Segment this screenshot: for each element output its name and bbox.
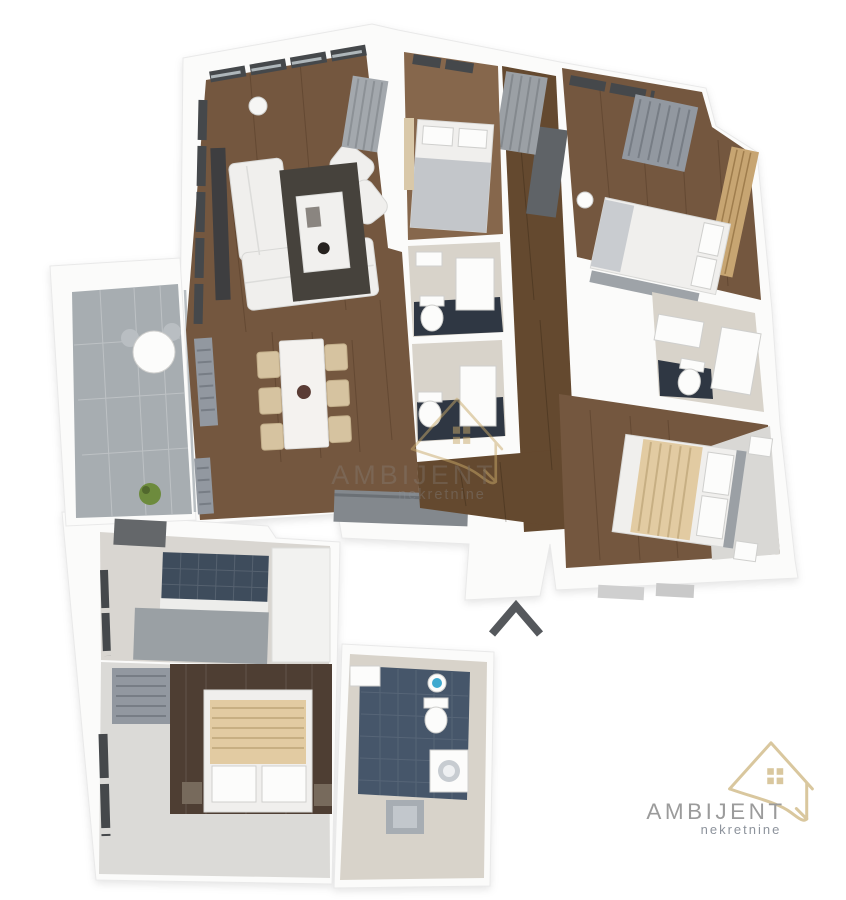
logo-tagline-text: nekretnine	[701, 822, 782, 837]
floorplan-image: AMBIJENT nekretnine AMBIJENT nekretnine	[0, 0, 846, 900]
dining-set	[256, 338, 352, 451]
pillow	[696, 496, 727, 539]
nightstand	[734, 541, 758, 562]
pillow	[262, 766, 306, 802]
bedroom2-curtain	[404, 118, 414, 190]
balcony-round-table	[133, 331, 175, 373]
bedroom-bottom-left	[99, 662, 332, 878]
shower-head	[428, 674, 446, 692]
rug-and-coffee-table	[279, 162, 370, 301]
nightstand	[577, 192, 593, 208]
nightstand	[182, 782, 202, 804]
toilet	[424, 698, 448, 733]
radiator	[112, 668, 170, 724]
tall-cabinet	[272, 548, 330, 662]
nightstand	[748, 436, 772, 457]
sink	[416, 252, 442, 266]
kitchen-vent	[113, 519, 166, 548]
counter	[133, 608, 269, 665]
bedroom-top-middle	[404, 52, 503, 240]
bath-mat	[386, 800, 424, 834]
plant	[139, 483, 161, 505]
watermark-brand-text: AMBIJENT	[331, 460, 497, 490]
dining-chair	[328, 416, 351, 443]
nightstand	[314, 784, 332, 806]
sink	[350, 666, 380, 686]
toilet	[420, 296, 444, 331]
entrance-arrow-icon	[492, 606, 540, 634]
bathroom-1	[408, 242, 504, 337]
shower	[460, 366, 496, 426]
dining-chair	[261, 423, 284, 450]
bedroom5-window-band	[103, 734, 106, 836]
bedroom-top-right	[562, 68, 761, 308]
pillow	[458, 128, 487, 148]
floor-lamp	[249, 97, 267, 115]
bed-small	[410, 119, 493, 232]
entry-step	[656, 583, 695, 598]
entry-step	[598, 585, 645, 600]
plant-shadow	[142, 486, 150, 494]
watermark-tagline-text: nekretnine	[398, 487, 486, 503]
bathroom-bottom	[340, 654, 487, 880]
balcony	[72, 284, 195, 518]
dining-chair	[259, 387, 282, 414]
shower	[456, 258, 494, 310]
pillow	[703, 452, 734, 495]
logo-house-window	[767, 768, 783, 784]
dining-chair	[324, 344, 347, 371]
balcony-floor	[72, 284, 192, 518]
pillow	[422, 126, 453, 146]
floorplan-canvas: AMBIJENT nekretnine AMBIJENT nekretnine	[0, 0, 846, 900]
logo-brand-text: AMBIJENT	[646, 799, 785, 824]
washing-machine	[430, 750, 468, 792]
dining-chair	[257, 351, 280, 378]
dining-chair	[326, 380, 349, 407]
living-side-window-band	[198, 100, 203, 328]
radiator	[622, 94, 698, 172]
double-bed	[204, 690, 312, 812]
brand-logo: AMBIJENT nekretnine	[646, 743, 812, 837]
pillow	[212, 766, 256, 802]
